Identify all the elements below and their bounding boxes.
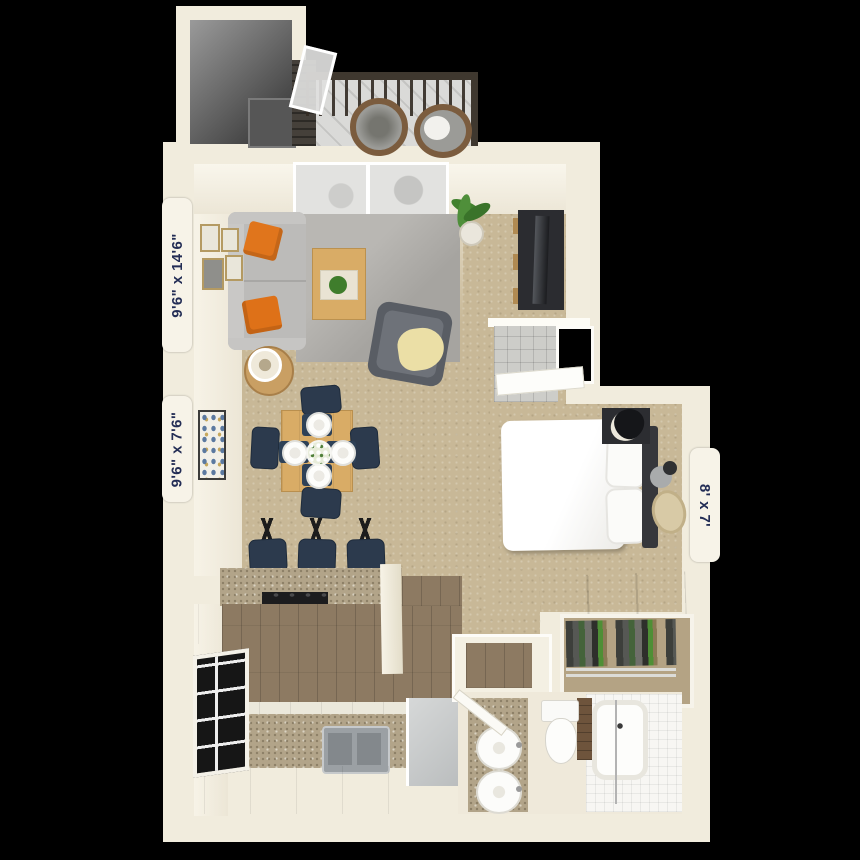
refrigerator [406,698,465,786]
dining-area-dimensions-text: 9'6" x 7'6" [170,411,185,487]
dining-chair [250,426,280,469]
tv-console [518,210,564,310]
floor-stool [663,461,677,475]
wood-accent-panel [577,698,592,760]
balcony-railing-right [471,72,478,146]
kitchen-wood-floor [402,576,462,606]
dinner-plate [306,412,332,438]
kitchen-window [193,648,249,778]
orange-throw-pillow [241,295,282,335]
wicker-chair [414,104,472,158]
wall-art-frame [202,258,224,290]
kitchen-partition-wall [380,564,403,674]
tv-screen [532,216,549,304]
dining-chair [300,487,342,520]
faucet [516,786,522,792]
kitchen-cabinet-front [204,766,422,814]
dinner-plate [306,463,332,489]
coffee-table-plant [329,276,347,294]
wall-art-frame [221,228,239,252]
console-wood-shelf [513,254,518,270]
flower-centerpiece [306,440,332,466]
console-wood-shelf [513,218,518,234]
wicker-chair [350,98,408,156]
chair-cushion [424,116,450,140]
table-lamp [248,348,282,382]
wall-art-frame [200,224,220,252]
shower-rod [615,700,617,804]
sofa-cushion-seam [244,280,306,282]
console-wood-shelf [513,288,518,304]
floor-plan-canvas: 9'6" x 14'6" 9'6" x 7'6" 8' x 7' [0,0,860,860]
dimension-label-dining-area: 9'6" x 7'6" [162,396,192,502]
dimension-label-living-room: 9'6" x 14'6" [162,198,192,352]
toilet-bowl [545,718,577,764]
faucet [516,742,522,748]
wall-art-frame [225,255,243,281]
dinner-plate [282,440,308,466]
bedroom-dimensions-text: 8' x 7' [698,483,713,526]
dimension-label-bedroom: 8' x 7' [690,448,720,562]
bathtub [592,700,648,780]
door-mullion [366,165,370,215]
dining-chair [300,384,342,415]
potted-plant-pot [459,221,484,246]
dinner-plate [330,440,356,466]
closet-wire-shelf [566,668,676,678]
sofa-armrest [228,212,306,224]
entry-closet-floor [466,643,532,688]
bed-pillow [605,487,647,544]
wall-art-frame [198,410,226,480]
living-room-dimensions-text: 9'6" x 14'6" [170,233,185,318]
vanity-sink [476,770,522,814]
hanging-clothes [566,619,677,667]
